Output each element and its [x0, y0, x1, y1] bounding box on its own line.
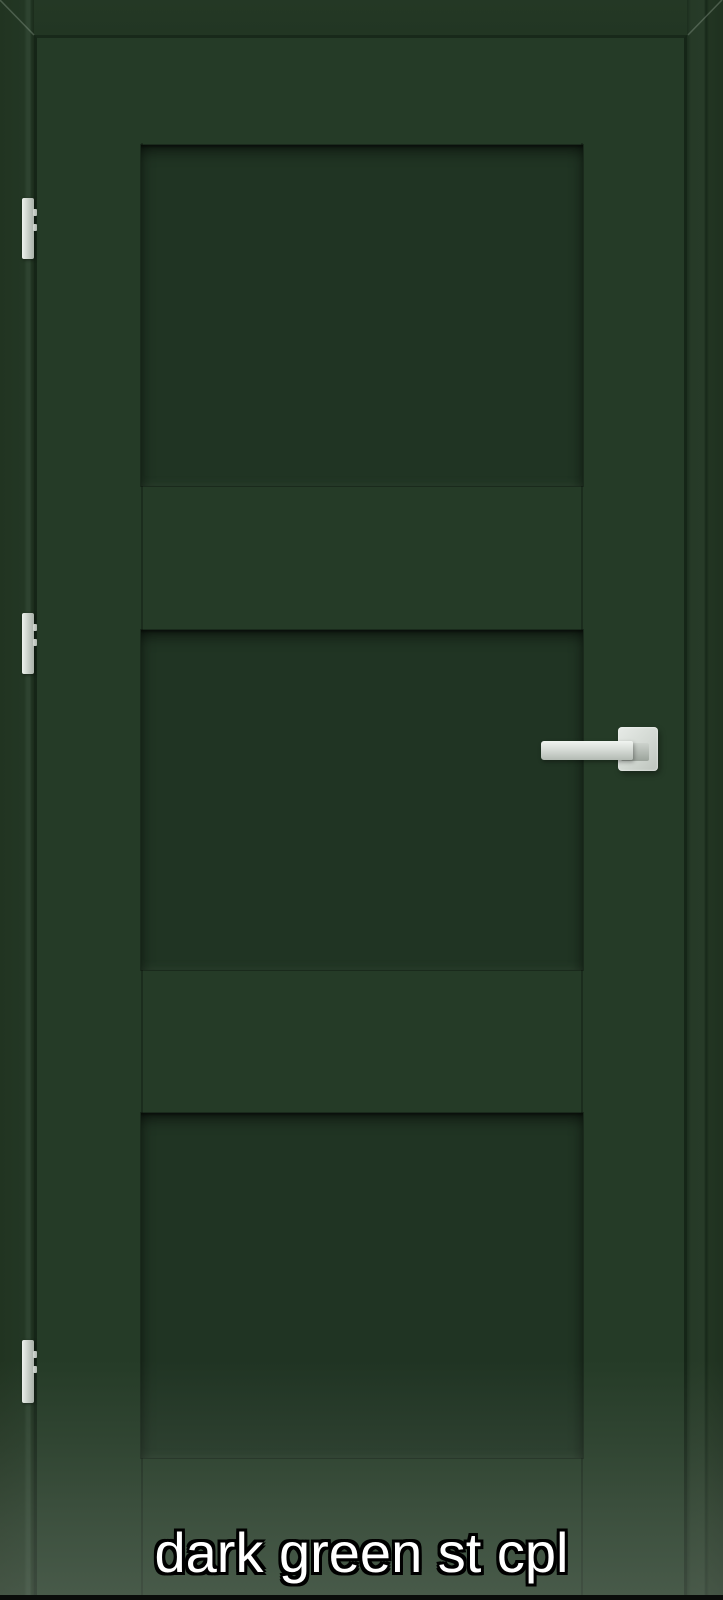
door-panel-bottom: [141, 1113, 583, 1458]
bottom-letterbox-bar: [0, 1595, 723, 1600]
caption: dark green st cpl: [0, 1518, 723, 1588]
door-panel-top: [141, 145, 583, 486]
hinge-middle: [22, 613, 34, 674]
door-product-image: dark green st cpl: [0, 0, 723, 1600]
door-frame-right-jamb: [687, 0, 723, 1600]
handle-lever: [541, 741, 633, 760]
door-slab: [34, 35, 687, 1600]
frame-miter-lines: [0, 0, 723, 40]
door-panel-middle: [141, 630, 583, 970]
hinge-bottom: [22, 1340, 34, 1403]
hinge-top: [22, 198, 34, 259]
